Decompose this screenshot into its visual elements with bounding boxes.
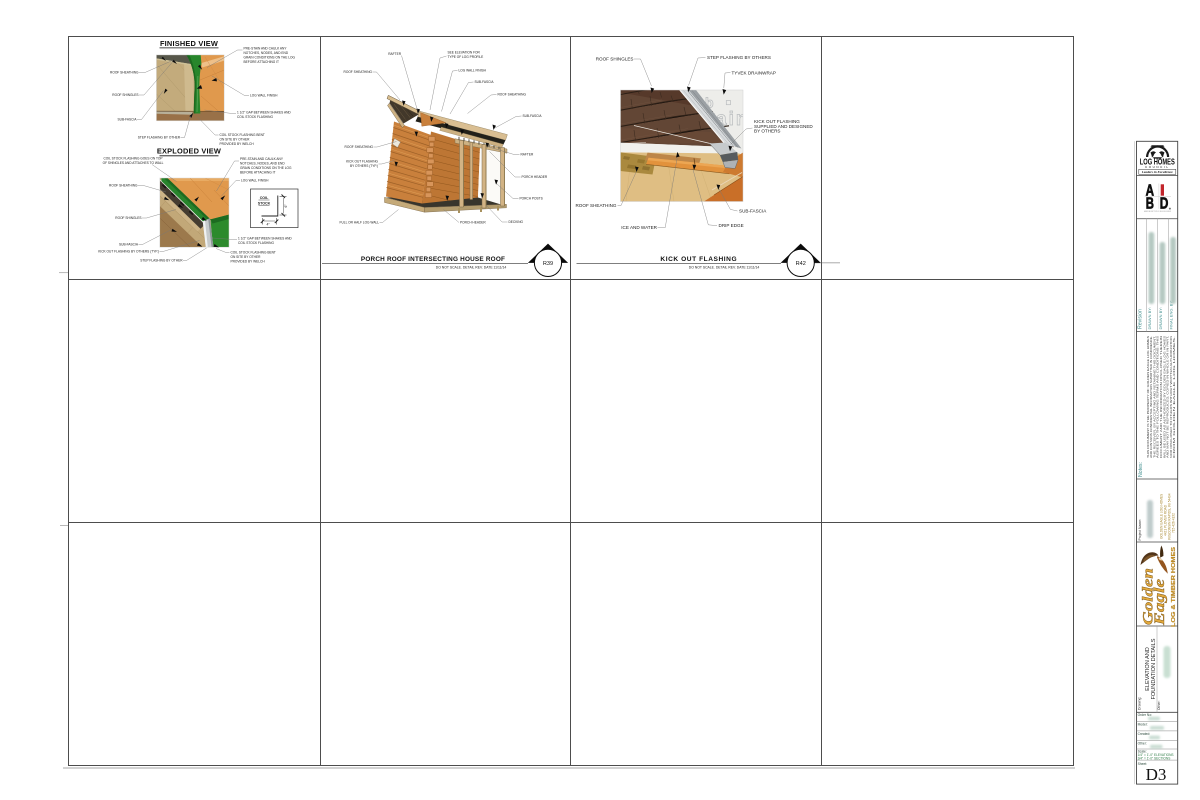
svg-text:ROOF SHEATHING: ROOF SHEATHING bbox=[110, 71, 139, 75]
svg-text:R39: R39 bbox=[543, 261, 553, 267]
svg-text:ROOF SHEATHING: ROOF SHEATHING bbox=[575, 203, 616, 208]
svg-text:FROM GOLDEN EAGLE LOG HOMES.: FROM GOLDEN EAGLE LOG HOMES. bbox=[1172, 336, 1176, 458]
svg-text:KICK OUT FLASHING BY OTHERS (T: KICK OUT FLASHING BY OTHERS (TYP.) bbox=[98, 250, 159, 254]
svg-text:DRIP EDGE: DRIP EDGE bbox=[719, 223, 744, 228]
svg-text:COIL STOCK FLASHING GOES ON TO: COIL STOCK FLASHING GOES ON TOP bbox=[103, 157, 162, 161]
svg-text:FINISHED VIEW: FINISHED VIEW bbox=[160, 39, 218, 48]
svg-text:1 1/2" GAP BETWEEN SHAKES AND: 1 1/2" GAP BETWEEN SHAKES AND bbox=[238, 237, 292, 241]
svg-text:PORCH POSTS: PORCH POSTS bbox=[520, 197, 543, 201]
svg-text:AMERICAN INSTITUTE OF BUILDING: AMERICAN INSTITUTE OF BUILDING DESIGN bbox=[1144, 210, 1171, 213]
svg-text:1 1/2" GAP BETWEEN SHAKES AND: 1 1/2" GAP BETWEEN SHAKES AND bbox=[237, 111, 291, 115]
svg-text:PRE-STAIN AND CAULK ANY: PRE-STAIN AND CAULK ANY bbox=[244, 47, 288, 51]
svg-text:FOUNDATION DETAILS: FOUNDATION DETAILS bbox=[1151, 638, 1157, 699]
svg-text:B: B bbox=[1146, 195, 1154, 212]
svg-text:COUNCIL: COUNCIL bbox=[1145, 165, 1170, 169]
svg-text:PORCH ROOF INTERSECTING HOUSE: PORCH ROOF INTERSECTING HOUSE ROOF bbox=[361, 256, 505, 263]
svg-text:Order No:: Order No: bbox=[1138, 713, 1153, 717]
svg-text:KICK OUT FLASHING: KICK OUT FLASHING bbox=[660, 256, 737, 263]
svg-text:Revision: Revision bbox=[1138, 309, 1144, 329]
svg-text:PORCH HEADER: PORCH HEADER bbox=[460, 221, 486, 225]
svg-text:Notes:: Notes: bbox=[1138, 462, 1144, 477]
svg-text:ROOF SHEATHING: ROOF SHEATHING bbox=[344, 70, 373, 74]
svg-text:LOG WALL FINISH: LOG WALL FINISH bbox=[250, 94, 278, 98]
svg-text:GRAIN CONDITIONS ON THE LOG: GRAIN CONDITIONS ON THE LOG bbox=[240, 166, 292, 170]
svg-text:STEP FLASHING BY OTHER: STEP FLASHING BY OTHER bbox=[138, 136, 181, 140]
svg-text:RAFTER: RAFTER bbox=[388, 52, 401, 56]
svg-text:ON SITE BY OTHER: ON SITE BY OTHER bbox=[220, 138, 251, 142]
svg-text:DO NOT SCALE. DETAIL REV. DATE: DO NOT SCALE. DETAIL REV. DATE 11/11/14 bbox=[436, 265, 507, 269]
svg-text:FULL OR HALF LOG WALL: FULL OR HALF LOG WALL bbox=[340, 221, 380, 225]
svg-text:ON SITE BY OTHER: ON SITE BY OTHER bbox=[231, 255, 262, 259]
svg-text:NOTCHES, NODES, AND END: NOTCHES, NODES, AND END bbox=[244, 51, 289, 55]
svg-text:ROOF SHINGLES: ROOF SHINGLES bbox=[112, 93, 138, 97]
svg-text:ROOF SHINGLES: ROOF SHINGLES bbox=[596, 57, 634, 62]
svg-text:BEFORE ATTACHING IT: BEFORE ATTACHING IT bbox=[244, 60, 280, 64]
svg-text:DECKING: DECKING bbox=[509, 220, 524, 224]
svg-text:715-426-4132: 715-426-4132 bbox=[1172, 513, 1176, 533]
svg-text:RAFTER: RAFTER bbox=[521, 153, 534, 157]
svg-text:Other:: Other: bbox=[1138, 742, 1147, 746]
svg-text:COIL STOCK FLASHING: COIL STOCK FLASHING bbox=[237, 115, 273, 119]
svg-text:LOG WALL FINISH: LOG WALL FINISH bbox=[459, 69, 487, 73]
svg-text:COIL: COIL bbox=[260, 196, 269, 200]
svg-text:Project Name:: Project Name: bbox=[1138, 519, 1142, 541]
svg-text:D: D bbox=[1160, 195, 1169, 212]
svg-text:PROVIDED BY WELCH: PROVIDED BY WELCH bbox=[220, 142, 255, 146]
svg-text:SUB-FASCIA: SUB-FASCIA bbox=[119, 243, 139, 247]
svg-text:Eagle: Eagle bbox=[1152, 578, 1168, 626]
svg-text:SEE ELEVATION FOR: SEE ELEVATION FOR bbox=[448, 51, 481, 55]
svg-text:NOTCHES, NODES, AND END: NOTCHES, NODES, AND END bbox=[240, 162, 285, 166]
svg-text:COIL STOCK FLASHING: COIL STOCK FLASHING bbox=[238, 241, 274, 245]
svg-text:STOCK: STOCK bbox=[258, 202, 271, 206]
svg-text:TYVEK DRAINWRAP: TYVEK DRAINWRAP bbox=[732, 71, 776, 76]
svg-text:TYPE OF LOG PROFILE: TYPE OF LOG PROFILE bbox=[448, 55, 484, 59]
svg-text:LOG & TIMBER HOMES: LOG & TIMBER HOMES bbox=[1171, 547, 1177, 627]
svg-text:KICK OUT FLASHING: KICK OUT FLASHING bbox=[346, 160, 378, 164]
svg-text:BY OTHERS: BY OTHERS bbox=[754, 129, 780, 134]
svg-text:PRE-STAIN AND CAULK ANY: PRE-STAIN AND CAULK ANY bbox=[240, 157, 284, 161]
svg-text:R42: R42 bbox=[796, 261, 806, 267]
svg-text:Other:: Other: bbox=[1157, 701, 1161, 710]
svg-text:STEP FLASHING BY OTHER: STEP FLASHING BY OTHER bbox=[140, 259, 183, 263]
svg-text:LOG WALL FINISH: LOG WALL FINISH bbox=[241, 179, 269, 183]
svg-text:ICE AND WATER: ICE AND WATER bbox=[621, 225, 657, 230]
svg-text:3/4" = 1'-0" SECTIONS: 3/4" = 1'-0" SECTIONS bbox=[1138, 756, 1171, 760]
svg-text:PORCH HEADER: PORCH HEADER bbox=[522, 175, 548, 179]
svg-text:ELEVATION AND: ELEVATION AND bbox=[1145, 647, 1151, 691]
svg-text:Drawing:: Drawing: bbox=[1137, 697, 1141, 710]
svg-text:ROOF SHEATHING: ROOF SHEATHING bbox=[498, 93, 527, 97]
svg-text:ROOF SHEATHING: ROOF SHEATHING bbox=[345, 145, 374, 149]
svg-text:COIL STOCK FLASHING BENT: COIL STOCK FLASHING BENT bbox=[220, 133, 265, 137]
svg-text:Created:: Created: bbox=[1138, 732, 1151, 736]
svg-text:Model:: Model: bbox=[1138, 723, 1148, 727]
svg-text:SUB-FASCIA: SUB-FASCIA bbox=[739, 209, 767, 214]
svg-text:Leaders in Excellence: Leaders in Excellence bbox=[1141, 170, 1173, 174]
svg-text:EXPLODED VIEW: EXPLODED VIEW bbox=[157, 147, 221, 156]
svg-text:SUB-FASCIA: SUB-FASCIA bbox=[475, 80, 495, 84]
svg-text:PROVIDED BY WELCH: PROVIDED BY WELCH bbox=[231, 260, 266, 264]
svg-text:SUB-FASCIA: SUB-FASCIA bbox=[523, 114, 543, 118]
svg-text:D3: D3 bbox=[1146, 765, 1167, 784]
svg-text:FINAL ENG. BY:: FINAL ENG. BY: bbox=[1168, 300, 1173, 329]
svg-text:COIL STOCK FLASHING BENT: COIL STOCK FLASHING BENT bbox=[231, 251, 276, 255]
svg-text:OF SHINGLES AND ATTACHES TO WA: OF SHINGLES AND ATTACHES TO WALL bbox=[103, 161, 164, 165]
svg-text:BEFORE ATTACHING IT: BEFORE ATTACHING IT bbox=[240, 171, 276, 175]
svg-text:SUB-FASCIA: SUB-FASCIA bbox=[118, 118, 138, 122]
svg-text:DO NOT SCALE. DETAIL REV. DATE: DO NOT SCALE. DETAIL REV. DATE 11/11/14 bbox=[689, 265, 760, 269]
svg-text:ROOF SHEATHING: ROOF SHEATHING bbox=[109, 184, 138, 188]
svg-text:DRAWN BY:: DRAWN BY: bbox=[1147, 307, 1152, 329]
svg-text:DRAWN BY:: DRAWN BY: bbox=[1158, 307, 1163, 329]
svg-text:ROOF SHINGLES: ROOF SHINGLES bbox=[115, 216, 141, 220]
svg-text:GRAIN CONDITIONS ON THE LOG: GRAIN CONDITIONS ON THE LOG bbox=[244, 56, 296, 60]
svg-text:BY OTHERS (TYP.): BY OTHERS (TYP.) bbox=[350, 164, 378, 168]
svg-text:STEP FLASHING BY OTHERS: STEP FLASHING BY OTHERS bbox=[707, 55, 771, 60]
